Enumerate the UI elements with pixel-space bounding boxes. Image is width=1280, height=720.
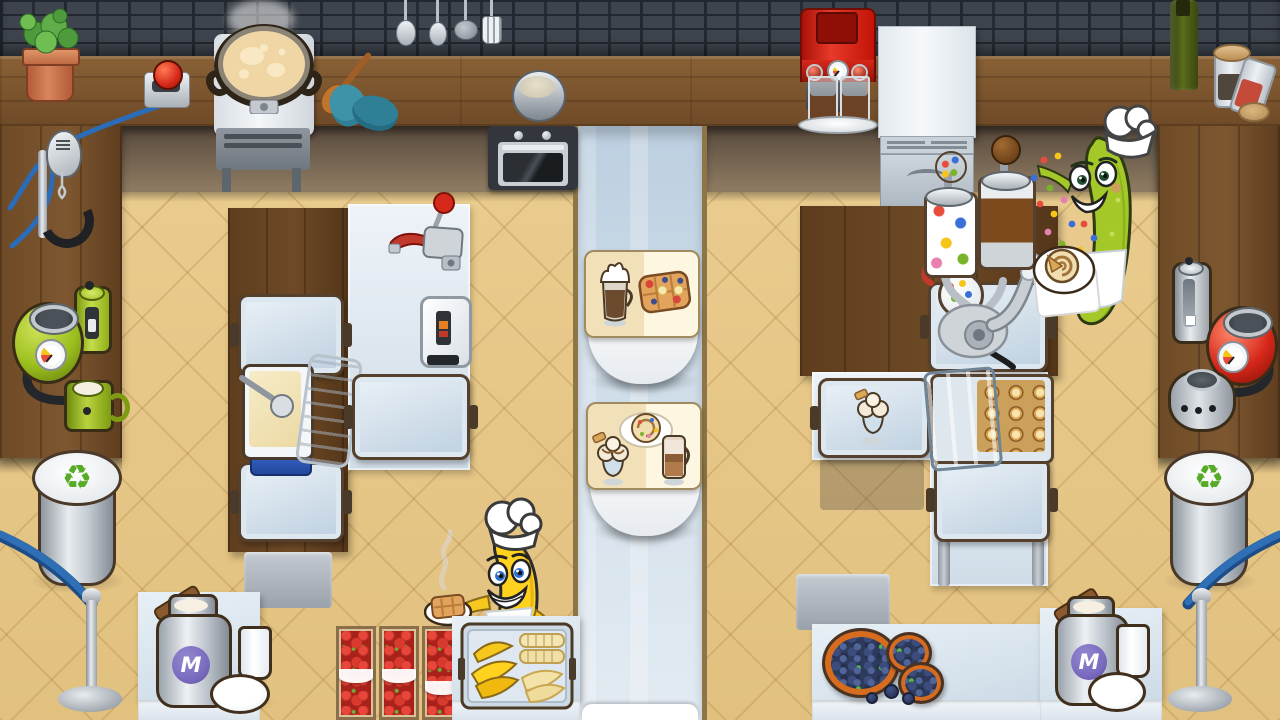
right-table-shadow	[820, 458, 924, 510]
pancake-batter	[223, 31, 305, 97]
griddle-leg	[292, 168, 301, 192]
stanchion-base	[1168, 686, 1232, 712]
spatula-turner-icon	[482, 16, 502, 44]
steam	[441, 532, 450, 588]
strawberry-crate[interactable]	[379, 626, 419, 720]
silver-dispenser[interactable]	[1172, 262, 1212, 344]
oven-handle	[502, 145, 564, 150]
corridor-edge-right	[702, 126, 707, 720]
ice-cream-sundae-icon	[851, 387, 895, 447]
glass-latte-icon	[658, 430, 692, 486]
batter-cooler[interactable]	[238, 360, 350, 472]
stanchion-pole	[86, 600, 97, 696]
green-frother-mug[interactable]	[64, 380, 114, 432]
empty-tray[interactable]	[934, 458, 1050, 542]
sprinkles-canister[interactable]	[924, 192, 978, 278]
loose-blueberry	[884, 684, 899, 699]
empty-tray[interactable]	[352, 374, 470, 460]
utensil-rack	[392, 0, 502, 46]
machine-screen	[816, 12, 858, 44]
oil-bottle	[1170, 0, 1198, 90]
grinder-switch[interactable]	[88, 319, 96, 332]
blueberry-counter-front	[812, 700, 1048, 720]
machine-gauge	[1217, 341, 1249, 373]
red-button-dome[interactable]	[153, 60, 183, 90]
milk-glass[interactable]	[238, 626, 272, 680]
griddle-pan[interactable]	[206, 18, 322, 114]
pancake-griddle-station[interactable]	[206, 0, 322, 200]
fridge-vent	[880, 136, 974, 154]
spoon-icon	[429, 22, 447, 46]
milk-brand-letter: M	[181, 653, 202, 677]
brick-wall	[0, 0, 1280, 56]
loose-blueberry	[902, 692, 915, 705]
green-beverage-machine[interactable]	[12, 302, 84, 384]
dispenser-cube	[1185, 315, 1196, 326]
griddle-leg	[222, 168, 231, 192]
waffle-icon	[431, 594, 465, 618]
strawberry-crate[interactable]	[336, 626, 376, 720]
oven-window	[503, 153, 563, 182]
oven-door[interactable]	[498, 142, 568, 186]
ladle-icon	[454, 20, 478, 40]
recycle-icon: ♻	[1194, 461, 1224, 495]
loose-blueberry	[866, 692, 878, 704]
metal-bowl[interactable]	[512, 70, 566, 122]
banana-tray[interactable]	[458, 620, 576, 712]
dispenser-light	[439, 321, 448, 329]
right-table-leg-panel	[796, 574, 890, 630]
griddle-base	[216, 128, 310, 170]
sundae-tray[interactable]	[818, 378, 930, 458]
wooden-coaster	[1238, 102, 1270, 122]
sauce-dispenser[interactable]	[420, 296, 472, 368]
slotted-spoon-icon	[396, 20, 416, 46]
milk-brand-letter: M	[1079, 650, 1100, 674]
chef-hat-icon	[1105, 106, 1156, 157]
oven[interactable]	[488, 126, 578, 190]
counter-leg	[1032, 540, 1044, 586]
stanchion-pole	[1196, 600, 1207, 696]
oven-knob[interactable]	[542, 131, 551, 140]
fridge-upper[interactable]	[878, 26, 976, 138]
ice-cream-sundae-icon	[592, 432, 634, 486]
counter-leg	[938, 540, 950, 586]
press-lever-knob[interactable]	[434, 193, 454, 213]
queue-rope	[0, 520, 140, 640]
kitchen-scene: M	[0, 0, 1280, 720]
mug-handle	[105, 393, 130, 422]
milk-brand-badge: M	[172, 646, 210, 684]
sprinkle-ball-knob	[935, 151, 967, 183]
hand-mixer[interactable]	[46, 130, 82, 178]
batter-ladle	[238, 368, 308, 418]
order-card-2[interactable]	[586, 402, 702, 490]
oven-knob[interactable]	[514, 131, 523, 140]
held-plate	[1034, 247, 1100, 317]
milk-surface	[1073, 601, 1105, 613]
corridor-bottom-table-edge	[582, 704, 698, 720]
drip-tray	[798, 116, 878, 134]
order-card-1[interactable]	[584, 250, 700, 338]
chef-hat-icon	[486, 499, 541, 550]
recycle-icon: ♻	[62, 461, 92, 495]
milk-surface	[174, 599, 208, 612]
steamer-pot[interactable]	[1168, 370, 1236, 432]
queue-rope	[1140, 520, 1280, 640]
lever-press[interactable]	[384, 190, 480, 274]
machine-gauge	[35, 339, 67, 371]
cinnamon-rolls-container[interactable]	[930, 374, 1054, 464]
cucumber-chef[interactable]	[1014, 104, 1164, 339]
grinder-knob	[85, 281, 94, 290]
stanchion-base	[58, 686, 122, 712]
white-plate[interactable]	[1088, 672, 1146, 712]
cucumber-arm	[1038, 166, 1072, 192]
whipped-cream-coffee-icon	[594, 258, 636, 328]
fruit-topped-waffle-icon	[636, 268, 694, 320]
red-call-button[interactable]	[144, 60, 190, 108]
white-plate[interactable]	[210, 674, 270, 714]
espresso-machine[interactable]	[798, 8, 874, 124]
